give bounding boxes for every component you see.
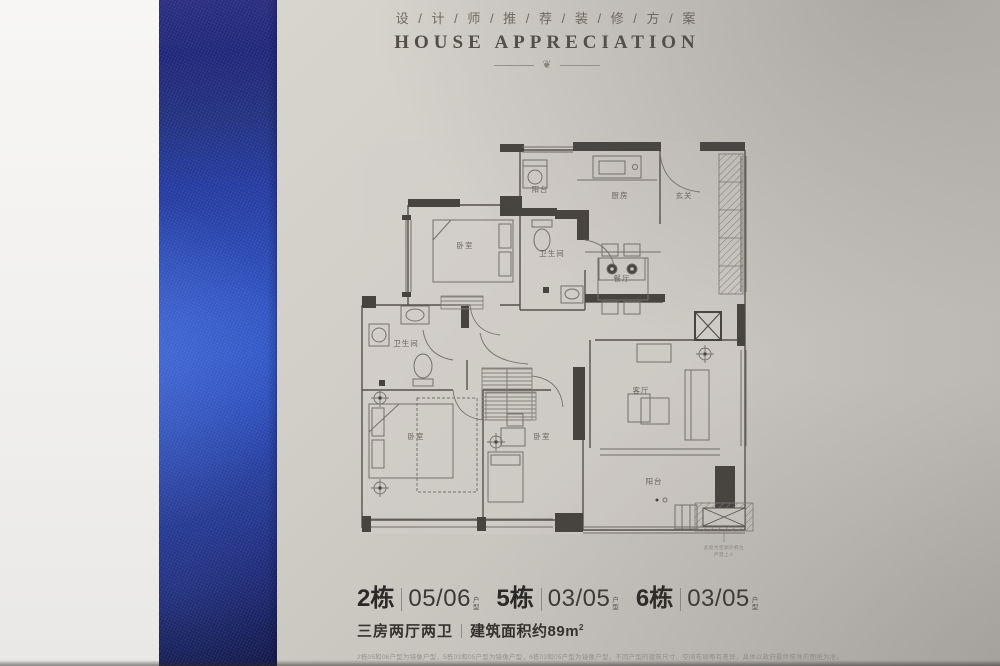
page-title-en: HOUSE APPRECIATION xyxy=(347,32,747,54)
header-ornament: ❦ xyxy=(347,60,747,70)
unit-group-5: 5栋 03/05 户 型 xyxy=(496,586,618,612)
room-label-bedroom-b: 卧室 xyxy=(408,431,425,441)
room-label-balcony-bottom: 阳台 xyxy=(646,476,663,486)
ac-note-line2: 严禁上人 xyxy=(714,551,734,558)
page-footer: 2栋 05/06 户 型 5栋 03/05 户 型 6栋 xyxy=(357,586,797,661)
area-superscript: 2 xyxy=(579,623,584,632)
room-label-dining: 餐厅 xyxy=(614,274,631,283)
unit-number: 05/06 xyxy=(408,586,471,612)
unit-suffix: 户 型 xyxy=(473,598,480,611)
building-number: 5栋 xyxy=(496,586,533,612)
flourish-icon: ❦ xyxy=(542,60,551,70)
column xyxy=(695,312,721,340)
divider xyxy=(461,624,462,638)
room-label-entry: 玄关 xyxy=(676,190,693,200)
room-label-balcony-top: 阳台 xyxy=(532,184,549,194)
divider xyxy=(401,588,402,611)
photo-bottom-edge xyxy=(0,660,1000,666)
area-spec: 建筑面积约89m2 xyxy=(470,620,584,641)
divider xyxy=(680,588,681,611)
page-header: 设 / 计 / 师 / 推 / 荐 / 装 / 修 / 方 / 案 HOUSE … xyxy=(347,8,747,70)
page-title-cn: 设 / 计 / 师 / 推 / 荐 / 装 / 修 / 方 / 案 xyxy=(347,8,747,27)
unit-group-2: 2栋 05/06 户 型 xyxy=(357,586,479,612)
floorplan-drawing: 阳台 厨房 玄关 卧室 卫生间 餐厅 卫生间 客厅 卧室 卧室 阳台 此处为空调… xyxy=(355,136,757,568)
room-label-living: 客厅 xyxy=(633,385,650,395)
unit-number: 03/05 xyxy=(548,586,611,612)
suffix-char: 型 xyxy=(612,605,619,612)
unit-group-6: 6栋 03/05 户 型 xyxy=(636,586,758,612)
ac-note-line1: 此处为空调外机位 xyxy=(704,544,744,551)
unit-list: 2栋 05/06 户 型 5栋 03/05 户 型 6栋 xyxy=(357,586,797,612)
building-number: 2栋 xyxy=(357,586,394,612)
brochure-photo: 设 / 计 / 师 / 推 / 荐 / 装 / 修 / 方 / 案 HOUSE … xyxy=(0,0,1000,666)
ornament-rule-right xyxy=(560,65,600,66)
layout-spec: 三房两厅两卫 xyxy=(357,620,453,641)
room-label-kitchen: 厨房 xyxy=(612,190,629,200)
room-label-bedroom-c: 卧室 xyxy=(534,431,551,441)
building-number: 6栋 xyxy=(636,586,673,612)
unit-suffix: 户 型 xyxy=(612,598,619,611)
suffix-char: 型 xyxy=(473,605,480,612)
room-label-bathroom-b: 卫生间 xyxy=(393,338,419,348)
room-label-bathroom-a: 卫生间 xyxy=(539,248,565,258)
area-text: 建筑面积约89m xyxy=(470,623,579,640)
unit-number: 03/05 xyxy=(687,586,750,612)
suffix-char: 型 xyxy=(752,605,759,612)
table-surface xyxy=(0,0,159,666)
ornament-rule-left xyxy=(494,65,534,66)
room-label-bedroom-a: 卧室 xyxy=(457,240,474,250)
spec-row: 三房两厅两卫 建筑面积约89m2 xyxy=(357,620,797,641)
unit-suffix: 户 型 xyxy=(752,598,759,611)
ac-platform xyxy=(695,503,753,542)
divider xyxy=(541,588,542,611)
